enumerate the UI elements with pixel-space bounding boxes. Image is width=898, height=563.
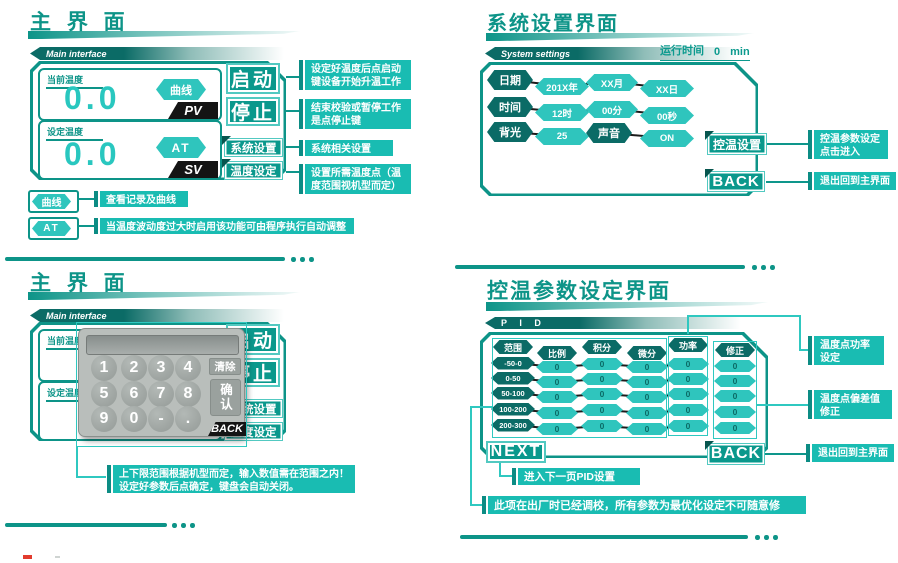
- pid-value-cell[interactable]: 0: [626, 361, 668, 373]
- sound-value-hex[interactable]: ON: [640, 130, 694, 147]
- system-settings-panel: 日期 201X年 XX月 XX日 时间 12时 00分 00秒 背光 25 声音…: [480, 62, 758, 196]
- manual-page: 主 界 面 Main interface 当前温度 0.0 曲线 PV 设定温度…: [0, 0, 898, 563]
- keypad-key-7[interactable]: 7: [148, 381, 174, 407]
- main-screen-panel: 当前温度 0.0 曲线 PV 设定温度 0.0 AT SV 启动 停止 系统设置…: [30, 61, 286, 180]
- pid-value-cell[interactable]: 0: [536, 361, 578, 373]
- keypad-key-4[interactable]: 4: [175, 355, 201, 381]
- time-min-hex[interactable]: 00分: [586, 101, 638, 118]
- sv-value: 0.0: [64, 138, 120, 170]
- pid-value-cell[interactable]: 0: [626, 407, 668, 419]
- pid-value-cell[interactable]: 0: [581, 420, 623, 432]
- keypad-key-3[interactable]: 3: [148, 355, 174, 381]
- callout-line: [767, 143, 808, 145]
- callout-line: [286, 146, 299, 148]
- at-button[interactable]: AT: [156, 137, 206, 158]
- section2-title: 系统设置界面: [487, 7, 619, 36]
- keypad-key--[interactable]: -: [148, 406, 174, 432]
- at-legend-hex: AT: [32, 221, 71, 236]
- keypad-display: [86, 335, 239, 355]
- temp-setting-button[interactable]: 温度设定: [224, 161, 283, 180]
- pid-value-cell[interactable]: 0: [581, 388, 623, 400]
- callout-line: [765, 453, 806, 455]
- pid-col-header: 修正: [715, 343, 755, 357]
- runtime-unit: min: [730, 46, 750, 58]
- time-sec-hex[interactable]: 00秒: [640, 107, 694, 124]
- section-divider: [5, 257, 285, 261]
- back-button[interactable]: BACK: [707, 171, 765, 192]
- callout-line: [76, 476, 106, 478]
- pid-value-cell[interactable]: 0: [667, 404, 709, 416]
- start-annotation: 设定好温度后点启动 键设备开始升温工作: [305, 60, 411, 90]
- section-divider: [455, 265, 745, 269]
- pid-value-cell[interactable]: 0: [536, 423, 578, 435]
- temp-annotation: 设置所需温度点（温 度范围视机型而定）: [305, 164, 411, 194]
- pid-table: 范围比例积分微分功率修正-50-0000000-500000050-100000…: [480, 332, 768, 458]
- sound-label-hex: 声音: [586, 123, 632, 143]
- backlight-value-hex[interactable]: 25: [535, 128, 589, 145]
- pid-col-header: 范围: [493, 340, 533, 354]
- system-settings-button[interactable]: 系统设置: [224, 138, 283, 157]
- keypad-key-0[interactable]: 0: [121, 406, 147, 432]
- pid-range-label: 50-100: [491, 387, 535, 400]
- title-underline-swoosh: [28, 31, 300, 39]
- pid-value-cell[interactable]: 0: [626, 376, 668, 388]
- section4-title: 控温参数设定界面: [487, 275, 671, 305]
- next-button[interactable]: NEXT: [486, 441, 546, 463]
- title-underline-swoosh: [486, 33, 754, 41]
- runtime-value: 0: [714, 46, 720, 58]
- system-annotation: 系统相关设置: [305, 140, 393, 156]
- sv-display: 设定温度 0.0 AT SV: [38, 120, 222, 180]
- title-underline-swoosh: [28, 292, 300, 300]
- pid-value-cell[interactable]: 0: [581, 404, 623, 416]
- pid-panel: 范围比例积分微分功率修正-50-0000000-500000050-100000…: [480, 332, 768, 458]
- main-interface-tab: Main interface: [30, 309, 306, 322]
- curve-legend-text: 查看记录及曲线: [100, 191, 188, 207]
- stop-button[interactable]: 停止: [226, 97, 280, 126]
- keypad-key-1[interactable]: 1: [91, 355, 117, 381]
- keypad-key-8[interactable]: 8: [175, 381, 201, 407]
- callout-line: [687, 315, 801, 317]
- pid-value-cell[interactable]: 0: [667, 420, 709, 432]
- pid-value-cell[interactable]: 0: [714, 390, 756, 402]
- at-legend-text: 当温度波动度过大时启用该功能可由程序执行自动调整: [100, 218, 354, 234]
- keypad-key-6[interactable]: 6: [121, 381, 147, 407]
- pv-value: 0.0: [64, 82, 120, 114]
- pid-value-cell[interactable]: 0: [714, 422, 756, 434]
- callout-line: [757, 404, 808, 406]
- date-month-hex[interactable]: XX月: [586, 74, 638, 91]
- runtime-label: 运行时间: [660, 42, 704, 58]
- pid-value-cell[interactable]: 0: [581, 373, 623, 385]
- pid-tab: P I D: [485, 317, 763, 329]
- pv-badge: PV: [168, 102, 218, 119]
- title-underline-swoosh: [486, 302, 768, 311]
- callout-line: [470, 406, 492, 408]
- curve-legend-key: 曲线: [28, 190, 79, 213]
- pid-range-label: 100-200: [491, 403, 535, 416]
- pid-range-label: 0-50: [491, 372, 535, 385]
- pid-value-cell[interactable]: 0: [667, 388, 709, 400]
- time-hour-hex[interactable]: 12时: [535, 104, 589, 121]
- numeric-keypad: 1234567890-. 清除 确认 BACK: [78, 328, 245, 437]
- keypad-key-9[interactable]: 9: [91, 406, 117, 432]
- pid-value-cell[interactable]: 0: [536, 391, 578, 403]
- callout-line: [286, 76, 299, 78]
- pid-value-cell[interactable]: 0: [714, 406, 756, 418]
- callout-line: [286, 171, 299, 173]
- pid-range-label: 200-300: [491, 419, 535, 432]
- callout-line: [799, 315, 801, 351]
- start-button[interactable]: 启动: [226, 63, 280, 94]
- runtime-display: 运行时间 0 min: [660, 42, 750, 61]
- callout-line: [286, 110, 299, 112]
- pid-value-cell[interactable]: 0: [626, 423, 668, 435]
- main-interface-tab: Main interface: [30, 47, 306, 60]
- pid-value-cell[interactable]: 0: [714, 375, 756, 387]
- pid-value-cell[interactable]: 0: [714, 360, 756, 372]
- section-divider: [5, 523, 167, 527]
- pid-value-cell[interactable]: 0: [581, 358, 623, 370]
- date-day-hex[interactable]: XX日: [640, 80, 694, 97]
- keypad-key-.[interactable]: .: [175, 406, 201, 432]
- temp-control-annotation: 控温参数设定 点击进入: [814, 130, 888, 159]
- pid-value-cell[interactable]: 0: [667, 373, 709, 385]
- temp-control-settings-button[interactable]: 控温设置: [707, 133, 767, 155]
- back-annotation: 退出回到主界面: [812, 444, 894, 462]
- pv-display: 当前温度 0.0 曲线 PV: [38, 68, 222, 121]
- red-mark: [23, 555, 32, 559]
- gray-mark: [55, 556, 60, 558]
- pid-col-header: 功率: [668, 338, 708, 352]
- curve-legend-hex: 曲线: [32, 194, 71, 209]
- keypad-clear-button[interactable]: 清除: [209, 358, 241, 375]
- back-annotation: 退出回到主界面: [814, 172, 896, 190]
- factory-annotation: 此项在出厂时已经调校，所有参数为最优化设定不可随意修改！: [488, 496, 806, 514]
- pid-value-cell[interactable]: 0: [626, 391, 668, 403]
- power-annotation: 温度点功率 设定: [814, 336, 884, 365]
- pid-value-cell[interactable]: 0: [667, 358, 709, 370]
- curve-button[interactable]: 曲线: [156, 79, 206, 100]
- callout-line: [76, 447, 78, 478]
- next-annotation: 进入下一页PID设置: [518, 468, 640, 485]
- backlight-label-hex: 背光: [487, 122, 533, 142]
- pid-value-cell[interactable]: 0: [536, 376, 578, 388]
- date-label-hex: 日期: [487, 70, 533, 90]
- pid-range-label: -50-0: [491, 357, 535, 370]
- pid-col-header: 微分: [627, 346, 667, 360]
- keypad-key-5[interactable]: 5: [91, 381, 117, 407]
- offset-annotation: 温度点偏差值 修正: [814, 390, 892, 419]
- at-legend-key: AT: [28, 217, 79, 240]
- date-year-hex[interactable]: 201X年: [535, 78, 589, 95]
- pid-col-header: 比例: [537, 346, 577, 360]
- callout-line: [687, 315, 689, 334]
- pid-col-header: 积分: [582, 340, 622, 354]
- keypad-back-button[interactable]: BACK: [208, 422, 246, 436]
- section-divider: [460, 535, 748, 539]
- pid-value-cell[interactable]: 0: [536, 407, 578, 419]
- keypad-annotation: 上下限范围根据机型而定，输入数值需在范围之内！ 设定好参数后点确定，键盘会自动关…: [113, 465, 355, 493]
- callout-line: [470, 406, 472, 506]
- stop-annotation: 结束校验或暂停工作 是点停止键: [305, 99, 411, 129]
- back-button[interactable]: BACK: [707, 443, 765, 465]
- keypad-confirm-button[interactable]: 确认: [210, 379, 241, 416]
- sv-badge: SV: [168, 161, 218, 178]
- keypad-key-2[interactable]: 2: [121, 355, 147, 381]
- time-label-hex: 时间: [487, 97, 533, 117]
- callout-line: [766, 181, 808, 183]
